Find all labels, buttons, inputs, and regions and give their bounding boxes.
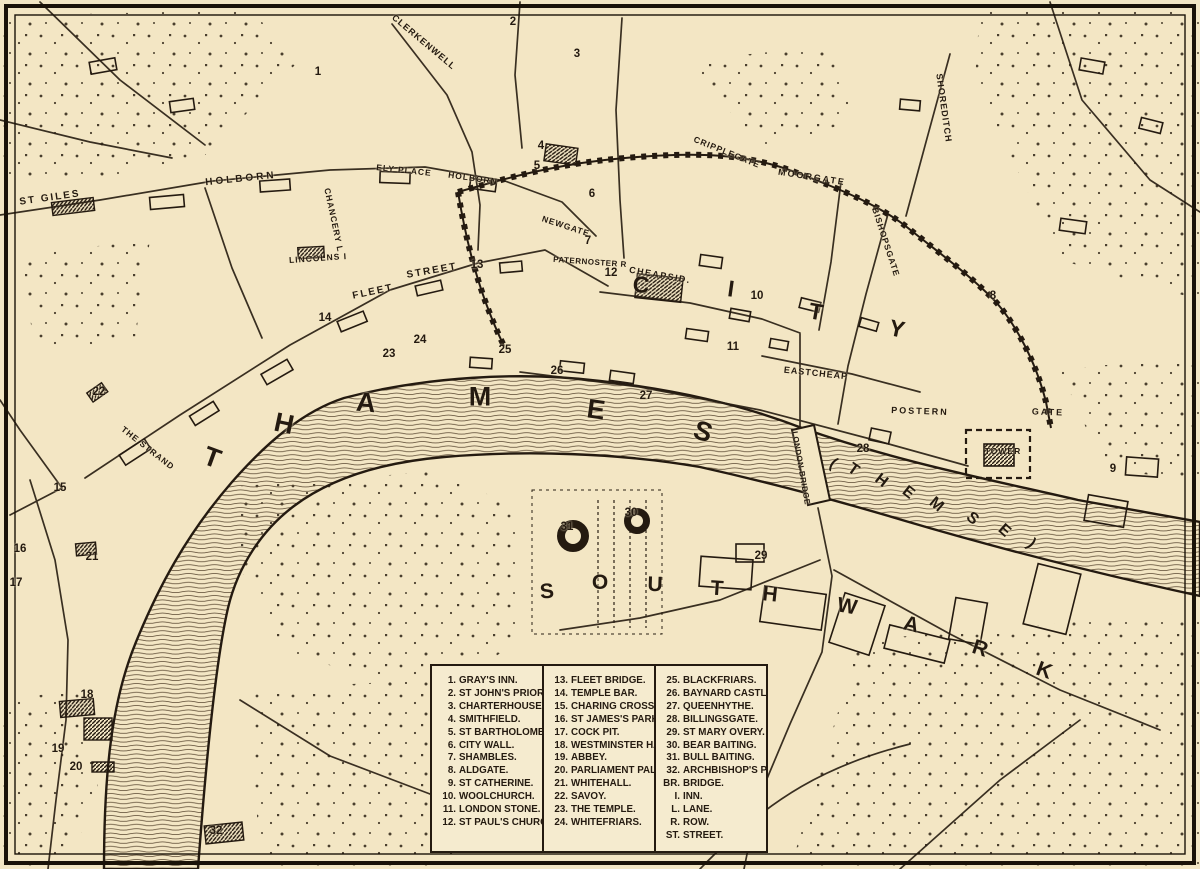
legend-entry: 28.BILLINGSGATE. [661,714,764,727]
legend-entry-name: ROW. [683,817,764,830]
legend-entry: 1.GRAY'S INN. [437,675,540,688]
legend-entry-name: SAVOY. [571,791,652,804]
legend-entry-name: PARLIAMENT PAL. [571,765,656,778]
legend-entry-name: BEAR BAITING. [683,740,764,753]
legend-entry-number: BR. [661,778,680,791]
legend-entry-name: CHARTERHOUSE. [459,701,544,714]
legend-entry: 19.ABBEY. [549,752,652,765]
legend-entry-name: ALDGATE. [459,765,540,778]
legend-entry-number: 25. [661,675,680,688]
legend-entry-name: ST JOHN'S PRIORY [459,688,544,701]
legend-entry-name: BAYNARD CASTLE. [683,688,766,701]
legend-entry: 30.BEAR BAITING. [661,740,764,753]
legend-entry-number: 15. [549,701,568,714]
legend-entry-number: 17. [549,727,568,740]
legend-entry: 17.COCK PIT. [549,727,652,740]
legend-entry: BR.BRIDGE. [661,778,764,791]
legend-entry: 4.SMITHFIELD. [437,714,540,727]
legend-entry-number: 22. [549,791,568,804]
legend-entry-name: CITY WALL. [459,740,540,753]
legend-entry: 32.ARCHBISHOP'S P. [661,765,764,778]
legend-entry-number: 30. [661,740,680,753]
legend-entry-number: 6. [437,740,456,753]
legend-entry-number: 27. [661,701,680,714]
legend-entry-number: 23. [549,804,568,817]
legend-entry: 5.ST BARTHOLOMEW. [437,727,540,740]
legend-entry: 6.CITY WALL. [437,740,540,753]
legend-entry-name: ABBEY. [571,752,652,765]
legend-entry: 11.LONDON STONE. [437,804,540,817]
legend-entry: 26.BAYNARD CASTLE. [661,688,764,701]
legend-entry-number: 21. [549,778,568,791]
legend-column-2: 13.FLEET BRIDGE.14.TEMPLE BAR.15.CHARING… [544,666,656,851]
legend-entry-name: FLEET BRIDGE. [571,675,652,688]
legend-entry: R.ROW. [661,817,764,830]
legend-entry-name: GRAY'S INN. [459,675,540,688]
legend-entry: 14.TEMPLE BAR. [549,688,652,701]
legend-entry: 9.ST CATHERINE. [437,778,540,791]
legend-entry-name: ST BARTHOLOMEW. [459,727,544,740]
legend-entry-number: 32. [661,765,680,778]
bull-baiting-ring [561,524,585,548]
legend-entry-name: BULL BAITING. [683,752,764,765]
legend-entry-number: 18. [549,740,568,753]
legend-entry-name: THE TEMPLE. [571,804,652,817]
legend-entry: 27.QUEENHYTHE. [661,701,764,714]
legend-entry-number: 4. [437,714,456,727]
legend-entry: 18.WESTMINSTER HALL [549,740,652,753]
legend-entry: 25.BLACKFRIARS. [661,675,764,688]
legend-entry-name: ST PAUL'S CHURCH. [459,817,544,830]
legend-entry-number: 10. [437,791,456,804]
legend-entry-number: 28. [661,714,680,727]
legend-entry-name: QUEENHYTHE. [683,701,764,714]
legend-entry: 2.ST JOHN'S PRIORY [437,688,540,701]
legend-entry: 7.SHAMBLES. [437,752,540,765]
legend-entry-number: ST. [661,830,680,843]
legend-entry-number: 9. [437,778,456,791]
legend-entry-number: 16. [549,714,568,727]
legend-entry-number: 29. [661,727,680,740]
legend-entry-name: BLACKFRIARS. [683,675,764,688]
legend-entry-name: CHARING CROSS. [571,701,656,714]
legend-entry: 31.BULL BAITING. [661,752,764,765]
legend-entry: 22.SAVOY. [549,791,652,804]
legend-entry-number: 14. [549,688,568,701]
legend-entry-name: WOOLCHURCH. [459,791,540,804]
legend-entry: ST.STREET. [661,830,764,843]
legend-entry-number: 12. [437,817,456,830]
legend-entry-name: ST CATHERINE. [459,778,540,791]
legend-column-3: 25.BLACKFRIARS.26.BAYNARD CASTLE.27.QUEE… [656,666,766,851]
historical-london-map: THAMES(THEMSE)CITYSOUTHWARK ST GILESHOLB… [0,0,1200,869]
legend-entry: I.INN. [661,791,764,804]
legend-entry-number: 24. [549,817,568,830]
legend-entry-name: LANE. [683,804,764,817]
legend-entry-number: 11. [437,804,456,817]
legend-entry: 16.ST JAMES'S PARK. [549,714,652,727]
legend-column-1: 1.GRAY'S INN.2.ST JOHN'S PRIORY3.CHARTER… [432,666,544,851]
map-legend: 1.GRAY'S INN.2.ST JOHN'S PRIORY3.CHARTER… [430,664,768,853]
bear-baiting-ring [628,512,647,531]
legend-entry: 15.CHARING CROSS. [549,701,652,714]
legend-entry: 13.FLEET BRIDGE. [549,675,652,688]
legend-entry: 12.ST PAUL'S CHURCH. [437,817,540,830]
legend-entry-number: 3. [437,701,456,714]
legend-entry: 23.THE TEMPLE. [549,804,652,817]
legend-entry: 10.WOOLCHURCH. [437,791,540,804]
legend-entry: 29.ST MARY OVERY. [661,727,764,740]
legend-entry-name: TEMPLE BAR. [571,688,652,701]
legend-entry-number: 5. [437,727,456,740]
legend-entry-number: L. [661,804,680,817]
legend-entry-number: 26. [661,688,680,701]
legend-entry: 20.PARLIAMENT PAL. [549,765,652,778]
legend-entry-name: LONDON STONE. [459,804,540,817]
legend-entry-name: WHITEHALL. [571,778,652,791]
legend-entry: 3.CHARTERHOUSE. [437,701,540,714]
legend-entry-number: 7. [437,752,456,765]
legend-entry-number: R. [661,817,680,830]
legend-entry-name: ARCHBISHOP'S P. [683,765,766,778]
legend-entry-number: I. [661,791,680,804]
legend-entry-name: INN. [683,791,764,804]
legend-entry-name: STREET. [683,830,764,843]
legend-entry: L.LANE. [661,804,764,817]
legend-entry: 21.WHITEHALL. [549,778,652,791]
legend-entry-name: WESTMINSTER HALL [571,740,656,753]
legend-entry-number: 1. [437,675,456,688]
legend-entry-name: BILLINGSGATE. [683,714,764,727]
legend-entry-name: ST MARY OVERY. [683,727,765,740]
legend-entry-number: 19. [549,752,568,765]
legend-entry-name: WHITEFRIARS. [571,817,652,830]
legend-entry-name: BRIDGE. [683,778,764,791]
legend-entry: 24.WHITEFRIARS. [549,817,652,830]
tower-of-london [966,430,1030,478]
legend-entry-number: 31. [661,752,680,765]
legend-entry-number: 13. [549,675,568,688]
legend-entry: 8.ALDGATE. [437,765,540,778]
legend-entry-name: SMITHFIELD. [459,714,540,727]
legend-entry-number: 2. [437,688,456,701]
legend-entry-number: 8. [437,765,456,778]
legend-entry-name: ST JAMES'S PARK. [571,714,656,727]
legend-entry-name: SHAMBLES. [459,752,540,765]
legend-entry-number: 20. [549,765,568,778]
legend-entry-name: COCK PIT. [571,727,652,740]
